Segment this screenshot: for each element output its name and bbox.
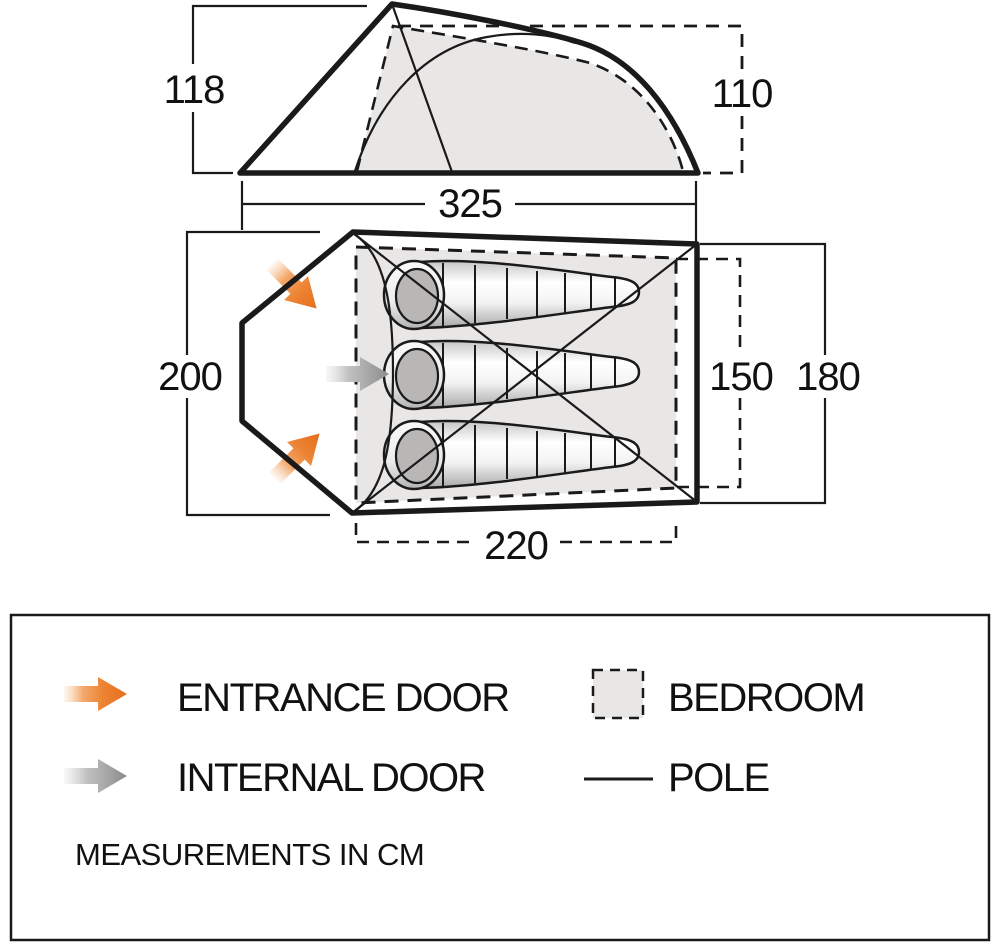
floor-plan: 200 220 150 180 — [158, 232, 860, 568]
diagram-canvas: 118 110 325 200 220 150 180 — [0, 0, 1000, 950]
legend-entrance-label: ENTRANCE DOOR — [177, 676, 509, 720]
dim-118-label: 118 — [164, 68, 225, 112]
dim-325-label: 325 — [438, 182, 502, 226]
legend-box — [11, 615, 989, 940]
legend: ENTRANCE DOOR INTERNAL DOOR BEDROOM POLE… — [11, 615, 989, 940]
dim-110-label: 110 — [712, 72, 773, 116]
dim-180-label: 180 — [796, 355, 860, 399]
legend-bedroom-label: BEDROOM — [668, 676, 864, 720]
entrance-door-arrow-icon — [263, 421, 332, 490]
dim-200-label: 200 — [158, 355, 222, 399]
dim-150-label: 150 — [709, 355, 773, 399]
tent-dimensions-diagram: 118 110 325 200 220 150 180 — [0, 0, 1000, 950]
legend-pole-label: POLE — [668, 756, 769, 800]
legend-internal-label: INTERNAL DOOR — [177, 756, 486, 800]
measurements-note: MEASUREMENTS IN CM — [75, 837, 424, 872]
dim-220-label: 220 — [484, 524, 548, 568]
legend-bedroom-swatch-icon — [593, 670, 643, 718]
side-view: 118 110 325 — [164, 4, 773, 243]
